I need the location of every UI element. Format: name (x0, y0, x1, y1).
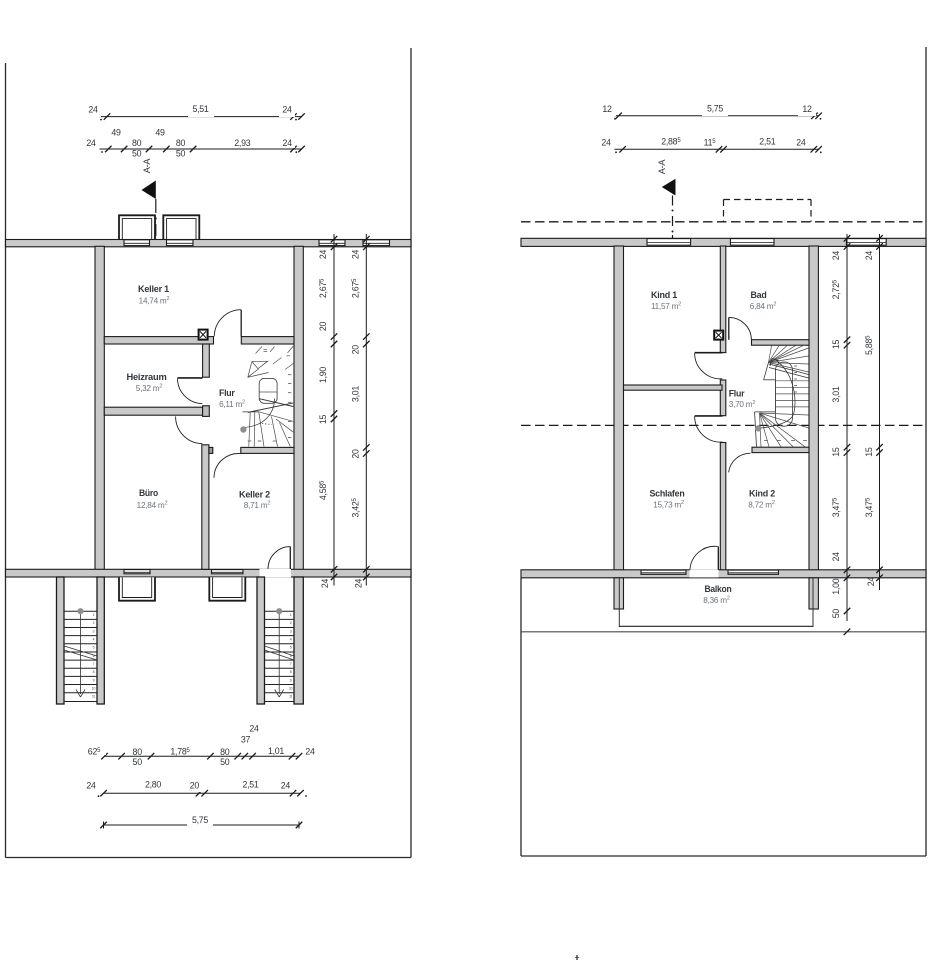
svg-text:20: 20 (351, 449, 361, 459)
svg-text:Kind 1: Kind 1 (651, 290, 677, 300)
svg-text:11,57 m2: 11,57 m2 (651, 302, 681, 311)
svg-text:50: 50 (220, 757, 230, 767)
svg-text:12,84 m2: 12,84 m2 (137, 501, 168, 510)
svg-text:24: 24 (281, 780, 291, 790)
svg-text:80: 80 (220, 747, 230, 757)
svg-text:20: 20 (190, 780, 200, 790)
svg-text:Keller 2: Keller 2 (239, 489, 270, 499)
svg-text:12: 12 (602, 104, 612, 114)
svg-text:24: 24 (249, 724, 259, 734)
svg-text:24: 24 (796, 137, 806, 147)
svg-text:Kind 2: Kind 2 (749, 488, 775, 498)
svg-text:6,11 m2: 6,11 m2 (219, 400, 245, 409)
svg-text:24: 24 (866, 577, 876, 587)
svg-text:6,84 m2: 6,84 m2 (750, 302, 777, 311)
svg-text:3,01: 3,01 (831, 386, 841, 402)
svg-text:3,01: 3,01 (351, 386, 361, 402)
svg-text:24: 24 (831, 251, 841, 261)
svg-text:50: 50 (176, 149, 186, 159)
svg-text:50: 50 (133, 757, 143, 767)
svg-text:49: 49 (155, 127, 165, 137)
svg-text:14,74 m2: 14,74 m2 (139, 296, 170, 305)
svg-text:5,51: 5,51 (192, 104, 208, 114)
svg-text:2,93: 2,93 (234, 138, 250, 148)
svg-text:Balkon: Balkon (705, 584, 733, 594)
svg-text:50: 50 (132, 149, 142, 159)
svg-text:12: 12 (802, 104, 812, 114)
svg-text:15: 15 (831, 340, 841, 350)
svg-text:24: 24 (831, 552, 841, 562)
svg-text:10: 10 (289, 686, 293, 690)
svg-text:8,71 m2: 8,71 m2 (244, 501, 271, 510)
svg-text:80: 80 (132, 138, 142, 148)
svg-text:49: 49 (111, 127, 121, 137)
svg-text:Keller 1: Keller 1 (138, 284, 169, 294)
svg-text:Flur: Flur (729, 388, 745, 398)
svg-text:A-A: A-A (142, 158, 152, 174)
svg-text:24: 24 (86, 780, 96, 790)
svg-text:1,90: 1,90 (318, 367, 328, 383)
svg-text:24: 24 (283, 138, 293, 148)
svg-text:Büro: Büro (139, 488, 159, 498)
svg-text:24: 24 (601, 138, 611, 148)
svg-text:Bad: Bad (751, 290, 768, 300)
svg-text:8,72 m2: 8,72 m2 (748, 500, 775, 509)
svg-text:80: 80 (176, 138, 186, 148)
svg-text:24: 24 (320, 579, 330, 589)
svg-text:11: 11 (92, 695, 95, 699)
svg-text:Schlafen: Schlafen (650, 488, 686, 498)
svg-text:24: 24 (318, 250, 328, 260)
svg-text:Flur: Flur (219, 388, 235, 398)
svg-text:5,32 m2: 5,32 m2 (136, 384, 163, 393)
svg-text:2,80: 2,80 (145, 779, 161, 789)
svg-text:37: 37 (241, 734, 251, 744)
svg-text:15: 15 (831, 447, 841, 457)
svg-text:3,70 m2: 3,70 m2 (729, 400, 756, 409)
svg-text:10: 10 (92, 686, 96, 690)
svg-text:24: 24 (305, 746, 315, 756)
svg-text:15: 15 (318, 415, 328, 425)
svg-text:50: 50 (831, 609, 841, 619)
svg-text:A-A: A-A (657, 159, 667, 175)
svg-text:8,36 m2: 8,36 m2 (703, 596, 730, 605)
svg-text:2,51: 2,51 (242, 779, 258, 789)
svg-text:24: 24 (282, 105, 292, 115)
svg-text:24: 24 (353, 579, 363, 589)
svg-text:1,01: 1,01 (268, 746, 284, 756)
svg-text:11: 11 (289, 695, 292, 699)
svg-text:Heizraum: Heizraum (127, 372, 167, 382)
svg-text:20: 20 (318, 322, 328, 332)
svg-text:1,00: 1,00 (831, 578, 841, 594)
svg-text:2,51: 2,51 (759, 137, 775, 147)
svg-text:15: 15 (864, 447, 874, 457)
svg-text:24: 24 (864, 251, 874, 261)
svg-text:15,73 m2: 15,73 m2 (653, 500, 684, 509)
svg-text:5,75: 5,75 (192, 815, 208, 825)
svg-text:24: 24 (351, 250, 361, 260)
svg-text:24: 24 (86, 138, 96, 148)
svg-text:5,75: 5,75 (707, 103, 723, 113)
svg-text:20: 20 (351, 345, 361, 355)
svg-text:24: 24 (88, 105, 98, 115)
svg-text:80: 80 (133, 747, 143, 757)
